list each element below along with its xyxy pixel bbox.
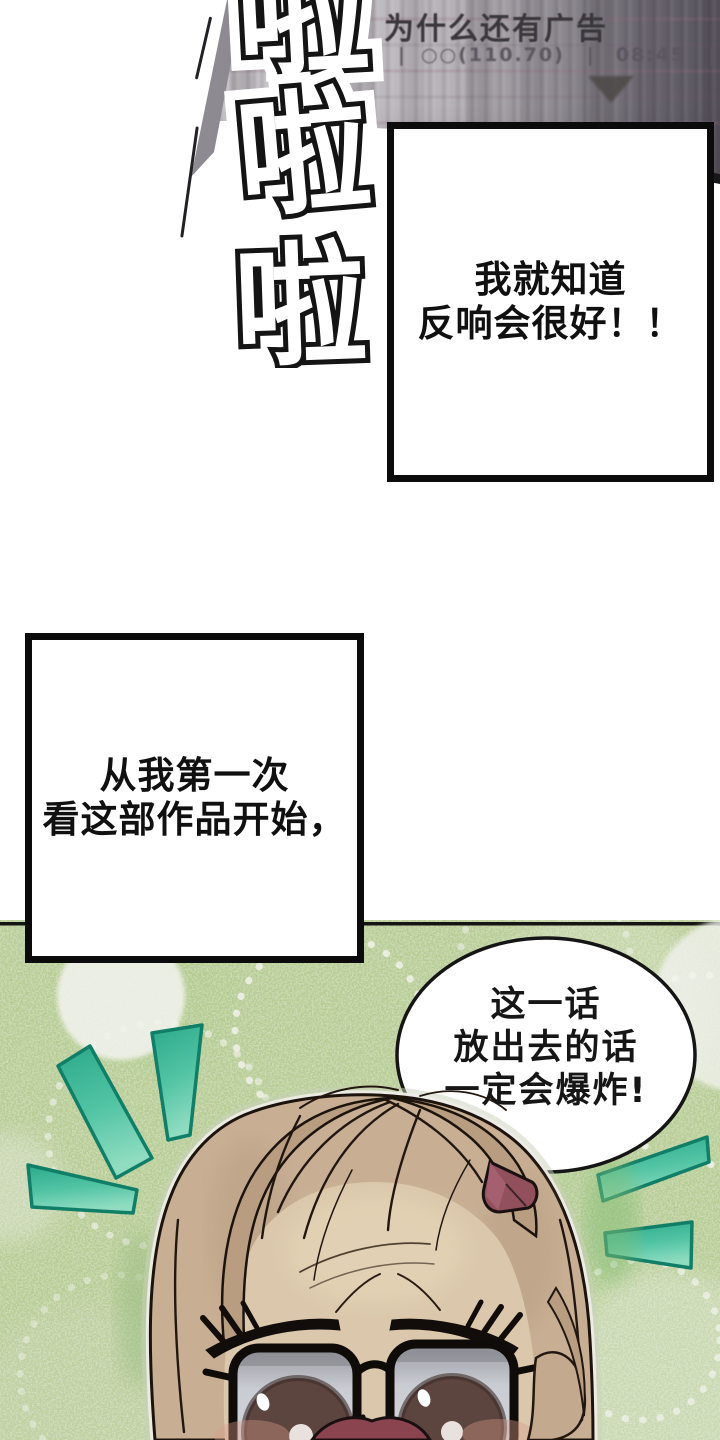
svg-text:啦: 啦 xyxy=(231,72,376,237)
screenshot-timeline-row: | ○○(110.70) | 08:45 | | 11 xyxy=(398,44,720,66)
caption-line: 反响会很好！！ xyxy=(418,302,684,346)
bottom-panel: 这一话 放出去的话 一定会爆炸! xyxy=(0,920,720,1440)
bubble-line: 这一话 xyxy=(490,985,601,1025)
caption-line: 从我第一次 xyxy=(100,754,290,798)
comic-page: 为什么还有广告 | ○○(110.70) | 08:45 | | 11 啦 啦 … xyxy=(0,0,720,1440)
bubble-line: 一定会爆炸! xyxy=(445,1071,648,1111)
background-shade xyxy=(586,1156,638,1284)
svg-text:啦: 啦 xyxy=(232,228,369,368)
sfx-la-la-la: 啦 啦 啦 啦 啦 啦 xyxy=(168,0,398,368)
timeline-separator: | xyxy=(398,44,407,66)
bubble-line: 放出去的话 xyxy=(453,1028,638,1068)
screenshot-comment-text: 为什么还有广告 xyxy=(384,4,608,48)
caption-box-1: 我就知道 反响会很好！！ xyxy=(387,122,714,482)
timeline-user-value: ○○(110.70) xyxy=(421,44,565,66)
caption-line: 看这部作品开始， xyxy=(43,798,347,842)
timeline-separator: | xyxy=(587,44,596,66)
caption-box-2: 从我第一次 看这部作品开始， xyxy=(25,633,364,963)
character-illustration xyxy=(150,1087,593,1440)
timeline-timestamp: 08:45 xyxy=(616,44,686,66)
timeline-separator: | xyxy=(708,44,717,66)
sfx-la-3: 啦 啦 xyxy=(232,228,369,368)
sfx-la-2: 啦 啦 xyxy=(231,72,376,237)
caption-line: 我就知道 xyxy=(475,258,627,302)
playhead-triangle-icon xyxy=(588,76,634,103)
